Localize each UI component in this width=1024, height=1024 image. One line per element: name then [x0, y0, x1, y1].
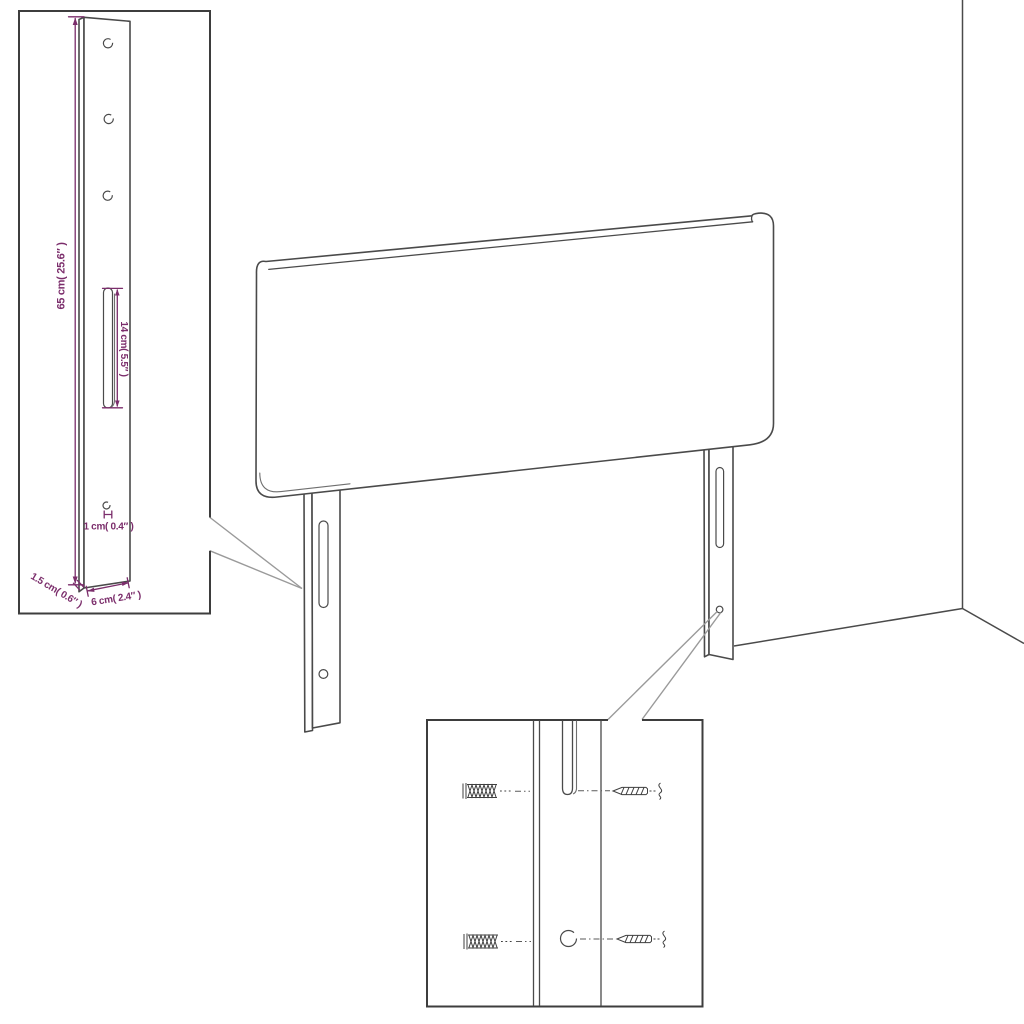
leg-detail-inset: 65 cm( 25.6″ ) 14 cm( 5.5″ ) 1 cm( 0.4″ … [19, 11, 210, 614]
hardware-inset-border [427, 720, 703, 1007]
right-leg [704, 440, 733, 659]
screw-upper [613, 783, 662, 800]
headboard-dimension-diagram: 65 cm( 25.6″ ) 14 cm( 5.5″ ) 1 cm( 0.4″ … [0, 0, 1024, 1024]
dim-hole-label: 1 cm( 0.4″ ) [83, 522, 133, 533]
bracket-slot [104, 288, 113, 408]
headboard-panel-outline [256, 213, 774, 497]
hardware-inset [427, 720, 703, 1007]
bracket-hole-bottom [103, 191, 112, 200]
dim-slot-label: 14 cm( 5.5″ ) [118, 321, 129, 376]
headboard-panel [256, 213, 774, 497]
left-leg-hole [319, 670, 328, 679]
right-leg-slot [716, 468, 724, 548]
bracket-hole-top [103, 39, 112, 48]
bracket-hole-middle [104, 114, 113, 123]
floor-edge-right-line [963, 609, 1024, 644]
left-leg-side-face [304, 488, 313, 732]
callout-wedge-left [210, 518, 302, 589]
screw-lower [617, 931, 666, 948]
wall-anchor-upper [463, 783, 513, 799]
dim-width-label: 6 cm( 2.4″ ) [91, 590, 142, 609]
bracket-small-hole [103, 502, 110, 509]
leg-strip-edges [534, 721, 602, 1006]
left-leg [304, 485, 340, 732]
leg-strip-slot [563, 721, 573, 795]
left-leg-slot [319, 521, 328, 608]
wall-anchor-lower [464, 934, 514, 950]
diagram-canvas: 65 cm( 25.6″ ) 14 cm( 5.5″ ) 1 cm( 0.4″ … [0, 0, 1024, 1024]
leg-strip-slot-depth [574, 721, 577, 794]
floor-edge-left-line [734, 609, 963, 647]
leg-strip-hole [561, 931, 577, 947]
room-corner [734, 0, 1024, 646]
dim-height-label: 65 cm( 25.6″ ) [56, 242, 68, 310]
